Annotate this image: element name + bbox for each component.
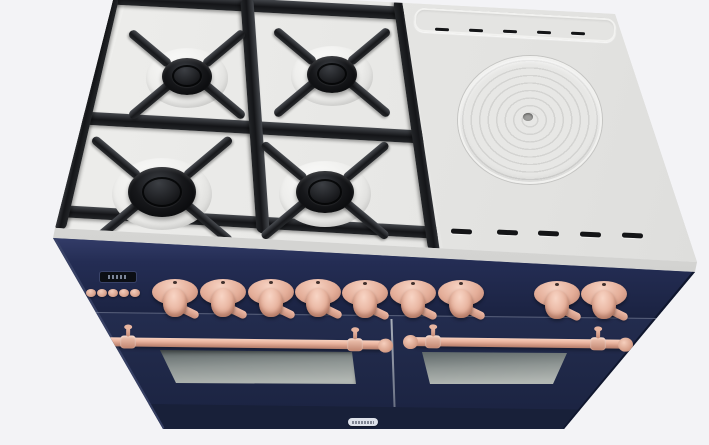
knob-body [592, 290, 616, 319]
control-knob [580, 281, 628, 323]
knob-indicator-mark [602, 283, 606, 286]
burner-cap-ring [308, 179, 343, 205]
knob-indicator-mark [555, 283, 559, 286]
product-render-stage [0, 0, 709, 445]
brand-wordmark [348, 418, 378, 426]
knob-indicator-mark [173, 281, 177, 284]
burner-cap [296, 171, 354, 214]
grate-finger [342, 140, 391, 183]
knob-body [449, 289, 473, 318]
knob-body [259, 288, 283, 317]
knob-indicator-mark [459, 282, 463, 285]
knob-indicator-mark [411, 282, 415, 285]
vent-slot [621, 232, 642, 238]
knob-indicator-mark [269, 281, 273, 284]
knob-body [163, 288, 187, 317]
vent-slot [496, 229, 517, 235]
control-knob [294, 279, 342, 321]
control-knob [437, 280, 485, 322]
knob-body [545, 290, 569, 319]
knob-indicator-mark [363, 282, 367, 285]
control-knob [533, 281, 581, 323]
brand-wordmark-glyphs [352, 421, 374, 424]
grate-finger [260, 140, 309, 183]
knob-indicator-mark [316, 281, 320, 284]
control-knob [151, 279, 199, 321]
control-knob [389, 280, 437, 322]
vent-slot [537, 230, 558, 236]
vent-slot [579, 231, 600, 237]
handle-finial [85, 335, 100, 349]
control-knob [341, 280, 389, 322]
control-knob [247, 279, 295, 321]
knob-body [401, 289, 425, 318]
vent-slot [450, 228, 471, 234]
knob-indicator-mark [221, 281, 225, 284]
knob-body [306, 288, 330, 317]
knob-body [211, 288, 235, 317]
knob-body [353, 289, 377, 318]
control-knob [199, 279, 247, 321]
